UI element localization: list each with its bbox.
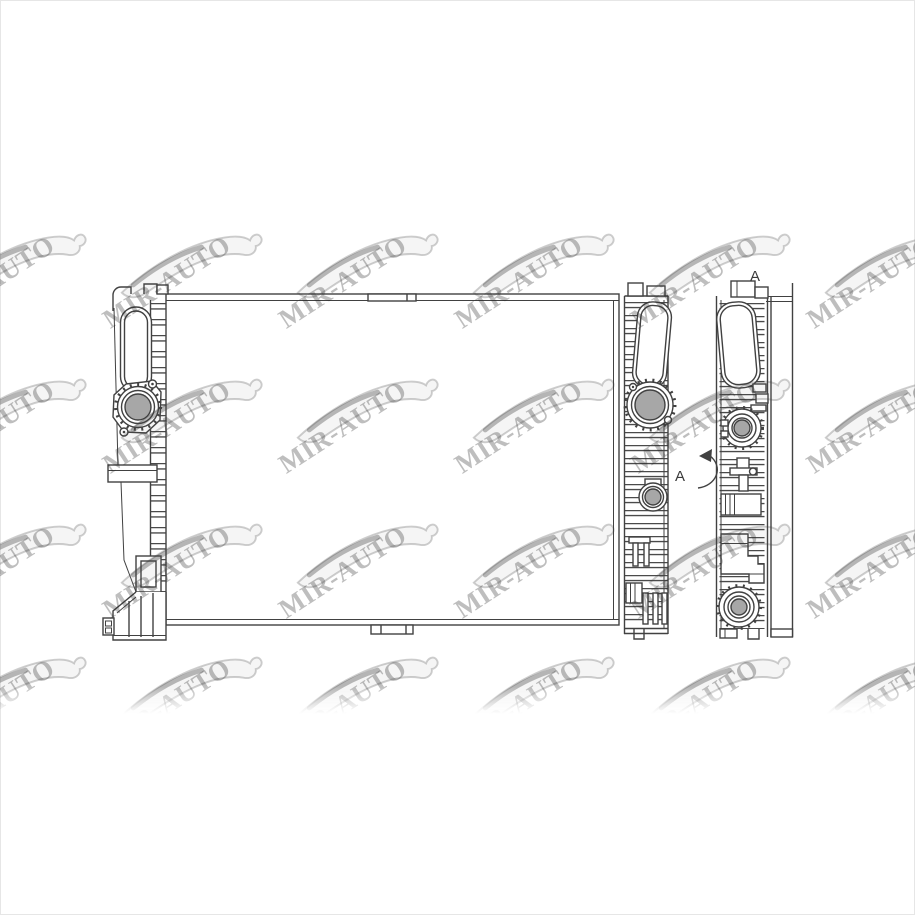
- left-end-tank: [103, 284, 168, 640]
- radiator-core: [166, 294, 619, 634]
- left-side-tab: [108, 465, 157, 482]
- upper-hose-connector: [721, 408, 763, 449]
- product-image: A A MIR-AUTO MIR-AUTO MIR-AUTO MIR-AUTO: [0, 0, 915, 915]
- right-end-tank: [624, 283, 675, 639]
- right-top-bracket: [628, 283, 665, 296]
- right-staple-bracket: [629, 537, 650, 566]
- side-lower-bracket: [721, 534, 764, 583]
- bottom-mount-tab: [371, 625, 413, 634]
- left-filler-cap: [113, 380, 161, 436]
- right-tank-opening: [631, 301, 672, 390]
- right-filler-cap: [625, 380, 675, 430]
- rotation-indicator: A: [675, 449, 717, 488]
- left-tank-opening: [121, 307, 152, 392]
- right-lower-fitting: [626, 583, 642, 603]
- hatched-fitting: [721, 494, 761, 515]
- left-lower-bracket: [136, 556, 161, 592]
- rotated-side-view: [715, 281, 792, 639]
- side-bottom-tabs: [720, 629, 759, 639]
- lower-hose-connector: [718, 586, 761, 629]
- left-foot-bracket: [103, 592, 166, 640]
- side-valve-fittings: [751, 384, 768, 411]
- side-tank-opening: [715, 300, 761, 389]
- side-panel: [766, 283, 793, 637]
- rotation-a-label: A: [675, 468, 685, 485]
- view-a-label: A: [750, 268, 760, 285]
- radiator-technical-drawing: A A: [0, 0, 915, 915]
- drain-port: [639, 479, 667, 511]
- top-mount-tab: [368, 294, 416, 301]
